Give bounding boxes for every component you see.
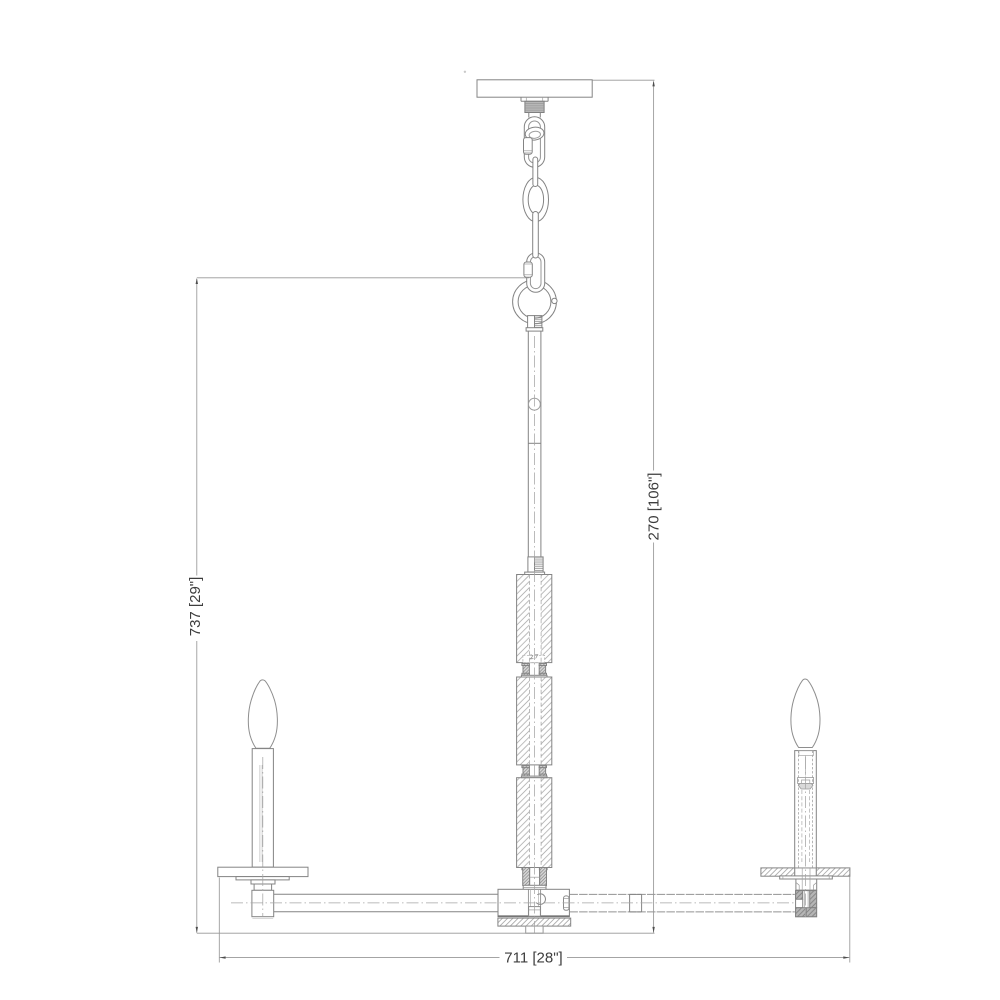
- svg-text:737 [29"]: 737 [29"]: [187, 577, 204, 637]
- svg-text:270 [106"]: 270 [106"]: [645, 473, 662, 541]
- svg-text:711 [28"]: 711 [28"]: [504, 950, 562, 967]
